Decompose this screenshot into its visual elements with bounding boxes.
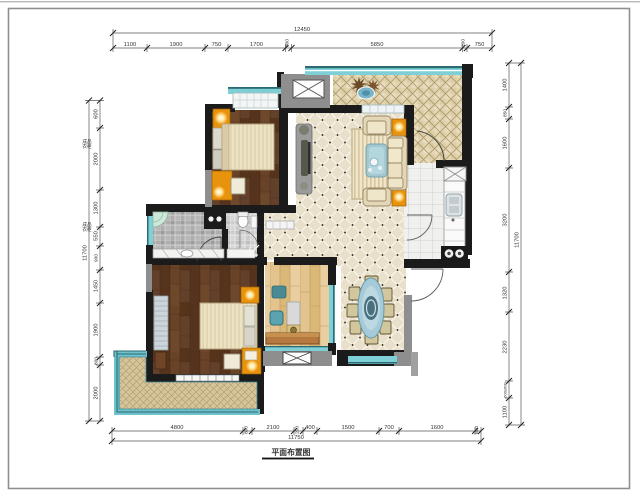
svg-text:2000: 2000 — [94, 153, 100, 166]
svg-text:1900: 1900 — [170, 42, 183, 48]
svg-text:1900: 1900 — [94, 324, 100, 337]
svg-text:1600: 1600 — [431, 425, 444, 431]
svg-text:200: 200 — [295, 426, 301, 434]
svg-text:550: 550 — [94, 231, 100, 241]
svg-text:2230: 2230 — [503, 341, 509, 354]
svg-text:1600: 1600 — [503, 137, 509, 150]
svg-text:750: 750 — [212, 42, 222, 48]
svg-text:650: 650 — [474, 426, 480, 434]
svg-text:衣柜: 衣柜 — [82, 226, 92, 233]
svg-text:1300: 1300 — [94, 202, 100, 215]
svg-text:1500: 1500 — [342, 425, 355, 431]
svg-text:1700: 1700 — [250, 42, 263, 48]
svg-text:3200: 3200 — [503, 214, 509, 227]
svg-text:850: 850 — [503, 109, 509, 117]
svg-text:400: 400 — [305, 425, 315, 431]
svg-text:2100: 2100 — [267, 425, 280, 431]
svg-text:平面布置图: 平面布置图 — [272, 447, 311, 457]
svg-text:2000: 2000 — [94, 387, 100, 400]
svg-text:4800: 4800 — [171, 425, 184, 431]
svg-text:11750: 11750 — [288, 435, 304, 441]
svg-text:800: 800 — [285, 39, 291, 47]
svg-text:750: 750 — [475, 42, 485, 48]
svg-text:11700: 11700 — [515, 232, 521, 248]
svg-text:5850: 5850 — [371, 42, 384, 48]
svg-text:800: 800 — [94, 357, 100, 365]
svg-text:1400: 1400 — [503, 79, 509, 92]
svg-text:1450: 1450 — [94, 280, 100, 292]
svg-text:1320: 1320 — [503, 287, 509, 300]
svg-text:700: 700 — [384, 425, 394, 431]
svg-text:1100: 1100 — [124, 42, 136, 48]
svg-text:600x600: 600x600 — [503, 382, 508, 398]
svg-text:12450: 12450 — [294, 27, 310, 33]
svg-text:900: 900 — [94, 254, 100, 262]
svg-text:1100: 1100 — [503, 406, 509, 418]
svg-text:600: 600 — [94, 109, 100, 119]
svg-text:衣柜: 衣柜 — [82, 143, 92, 150]
svg-text:11700: 11700 — [83, 245, 89, 261]
svg-text:800: 800 — [244, 426, 250, 434]
svg-text:200: 200 — [461, 39, 467, 47]
